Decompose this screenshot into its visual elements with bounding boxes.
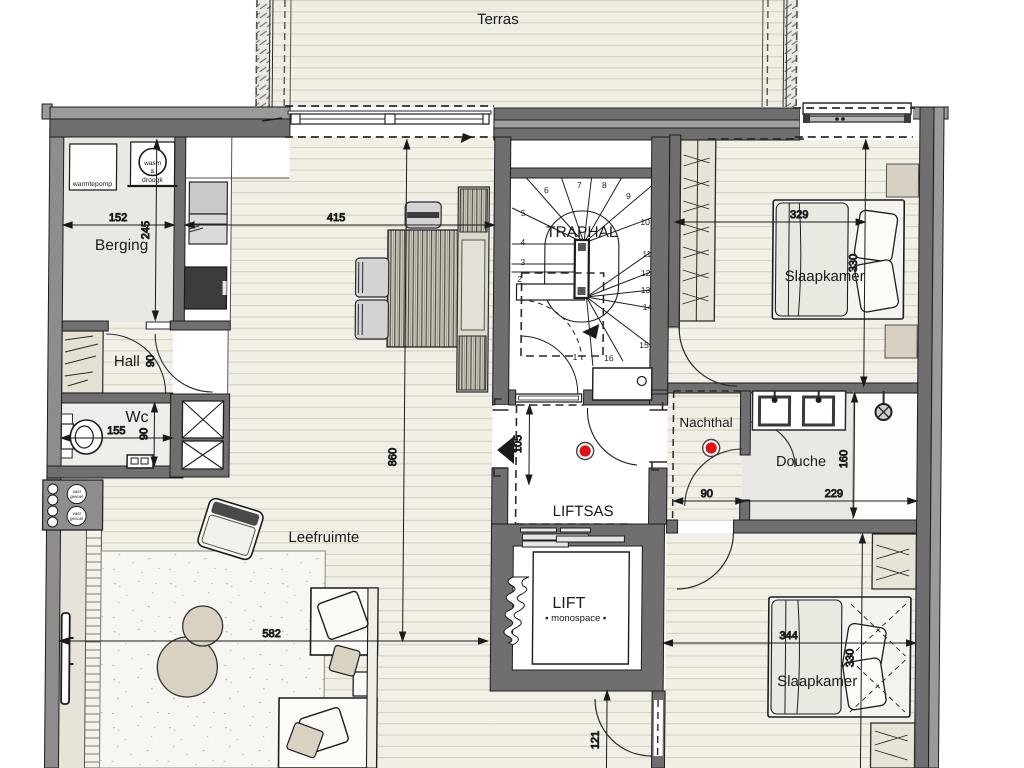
- svg-text:11: 11: [642, 249, 651, 259]
- svg-text:7: 7: [577, 180, 582, 190]
- svg-text:229: 229: [825, 488, 843, 500]
- svg-text:wasm: wasm: [143, 160, 161, 167]
- svg-text:15: 15: [639, 340, 649, 350]
- svg-text:90: 90: [145, 355, 157, 367]
- svg-text:12: 12: [641, 268, 651, 278]
- svg-text:90: 90: [138, 428, 150, 440]
- svg-text:warmtepomp: warmtepomp: [72, 181, 113, 188]
- svg-text:3: 3: [520, 257, 525, 267]
- svg-text:Slaapkamer: Slaapkamer: [785, 268, 865, 285]
- svg-text:&: &: [151, 169, 155, 175]
- svg-text:329: 329: [790, 209, 808, 221]
- svg-text:5: 5: [521, 208, 526, 218]
- svg-text:152: 152: [109, 212, 127, 224]
- svg-text:1: 1: [573, 352, 578, 362]
- svg-text:LIFT: LIFT: [552, 595, 585, 612]
- svg-text:TRAPHAL: TRAPHAL: [546, 224, 618, 241]
- svg-text:14: 14: [643, 302, 653, 312]
- svg-text:▪ monospace ▪: ▪ monospace ▪: [545, 613, 606, 624]
- svg-text:13: 13: [641, 285, 651, 295]
- svg-text:Douche: Douche: [776, 454, 826, 470]
- svg-text:Terras: Terras: [477, 11, 519, 28]
- svg-text:Nachthal: Nachthal: [679, 415, 732, 430]
- svg-text:Berging: Berging: [95, 237, 149, 254]
- svg-text:Slaapkamer: Slaapkamer: [777, 673, 857, 690]
- svg-text:Wc: Wc: [125, 409, 148, 426]
- svg-text:8: 8: [602, 180, 607, 190]
- svg-text:10: 10: [640, 217, 650, 227]
- svg-text:105: 105: [512, 435, 524, 453]
- svg-text:6: 6: [544, 185, 549, 195]
- svg-text:LIFTSAS: LIFTSAS: [553, 503, 614, 520]
- svg-text:582: 582: [262, 628, 280, 640]
- svg-text:9: 9: [626, 191, 631, 201]
- svg-text:gevoel: gevoel: [70, 494, 83, 499]
- svg-text:860: 860: [387, 448, 399, 466]
- svg-text:155: 155: [107, 425, 125, 437]
- svg-text:160: 160: [838, 450, 850, 468]
- svg-text:2: 2: [517, 274, 522, 284]
- svg-text:droogk: droogk: [142, 177, 163, 184]
- svg-text:90: 90: [701, 488, 713, 500]
- svg-text:gevoel: gevoel: [70, 516, 83, 521]
- svg-text:Hall: Hall: [114, 353, 140, 370]
- svg-text:4: 4: [521, 237, 526, 247]
- svg-text:415: 415: [327, 212, 345, 224]
- svg-text:121: 121: [590, 731, 602, 749]
- svg-text:16: 16: [604, 353, 614, 363]
- svg-text:344: 344: [779, 630, 797, 642]
- svg-text:Leefruimte: Leefruimte: [288, 529, 359, 546]
- svg-text:330: 330: [844, 649, 856, 667]
